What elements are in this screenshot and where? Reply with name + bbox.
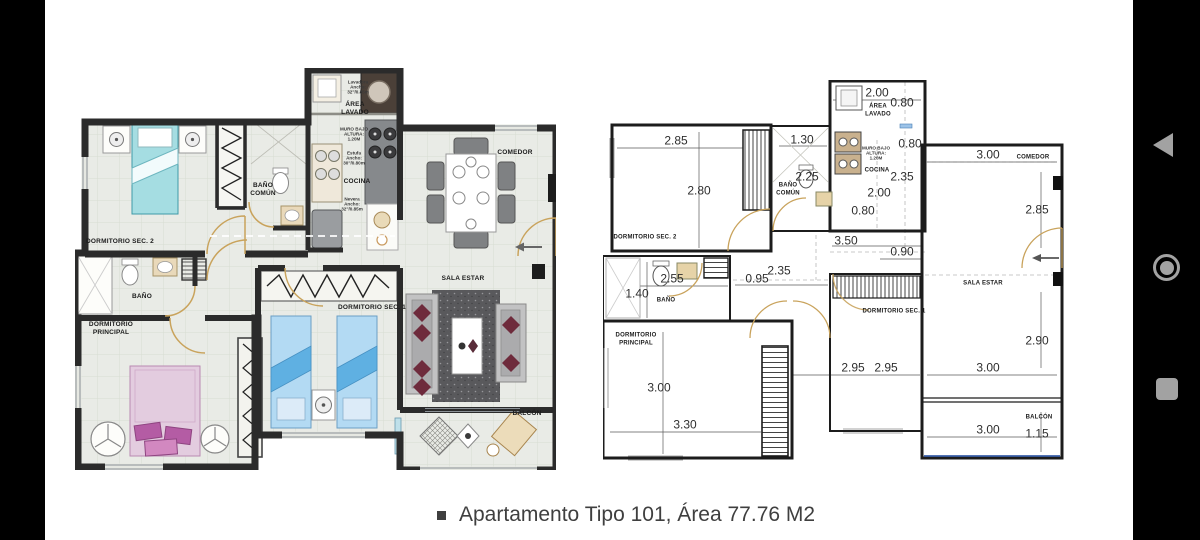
floorplan-furnished: Lavadora Ancho: 32"/0.85m ÁREA LAVADO MU… xyxy=(75,68,556,470)
dim-dormp-width: 3.30 xyxy=(673,418,696,433)
room-label-cocina: COCINA xyxy=(865,167,890,175)
dim-cocina-height: 2.35 xyxy=(890,170,913,185)
room-label-dormitorio-sec-2: DORMITORIO SEC. 2 xyxy=(86,238,154,246)
screen-bezel-left xyxy=(0,0,45,540)
android-nav-bar xyxy=(1133,0,1200,540)
caption-bullet xyxy=(437,511,446,520)
dim-dorm1-width-1: 2.95 xyxy=(841,361,864,376)
entry-arrow xyxy=(1032,254,1059,262)
dim-dorm2-width: 2.85 xyxy=(664,134,687,149)
room-label-banio: BAÑO xyxy=(657,297,675,305)
room-label-dormitorio-sec-1: DORMITORIO SEC. 1 xyxy=(338,304,406,312)
room-label-balcon: BALCÓN xyxy=(512,410,541,418)
note-lavadora: Lavadora Ancho: 32"/0.85m xyxy=(347,79,369,94)
room-label-cocina: COCINA xyxy=(344,178,371,186)
room-label-sala-estar: SALA ESTAR xyxy=(442,275,485,283)
home-icon[interactable] xyxy=(1153,254,1180,281)
dim-lavado-width: 2.00 xyxy=(865,86,888,101)
dim-cocina-total: 3.50 xyxy=(834,234,857,249)
dim-dormp-height: 3.00 xyxy=(647,381,670,396)
dim-pasillo-height: 0.95 xyxy=(745,272,768,287)
dim-lavado-depth: 0.80 xyxy=(890,96,913,111)
room-label-area-lavado: ÁREA LAVADO xyxy=(865,104,891,119)
dim-comedor-width: 3.00 xyxy=(976,148,999,163)
note-muro-bajo: MURO BAJO ALTURA: 1.20M xyxy=(862,145,890,160)
dim-cocina-width: 2.00 xyxy=(867,186,890,201)
room-label-banio: BAÑO xyxy=(132,293,152,301)
caption-text: Apartamento Tipo 101, Área 77.76 M2 xyxy=(459,503,815,527)
dim-sala-width: 3.00 xyxy=(976,361,999,376)
left-floorplan-drawing xyxy=(75,68,556,470)
room-label-balcon: BALCÓN xyxy=(1026,414,1053,422)
room-label-sala-estar: SALA ESTAR xyxy=(963,280,1003,288)
room-label-dormitorio-sec-1: DORMITORIO SEC. 1 xyxy=(863,308,926,316)
dim-pasillo-width: 0.90 xyxy=(890,245,913,260)
dim-cocina-depth: 0.80 xyxy=(851,204,874,219)
room-label-area-lavado: ÁREA LAVADO xyxy=(341,101,369,117)
dim-dorm1-width-2: 2.95 xyxy=(874,361,897,376)
room-label-banio-comun: BAÑO COMÚN xyxy=(776,183,800,198)
dim-balcon-width: 3.00 xyxy=(976,423,999,438)
dim-pasillo-length: 2.35 xyxy=(767,264,790,279)
room-label-dormitorio-principal: DORMITORIO PRINCIPAL xyxy=(616,333,657,348)
room-label-comedor: COMEDOR xyxy=(1017,154,1050,162)
floorplan-dimensioned: 2.00 0.80 ÁREA LAVADO 1.30 2.85 0.80 MUR… xyxy=(603,80,1090,470)
note-muro-bajo: MURO BAJO ALTURA: 1.20M xyxy=(340,126,368,141)
room-label-comedor: COMEDOR xyxy=(497,149,532,157)
room-label-banio-comun: BAÑO COMÚN xyxy=(250,182,276,198)
note-estufa: Estufa Ancho: 30"/0.80m xyxy=(343,150,365,165)
note-nevera: Nevera Ancho: 32"/0.85m xyxy=(341,196,363,211)
dim-comedor-height: 2.85 xyxy=(1025,203,1048,218)
dim-sala-height: 2.90 xyxy=(1025,334,1048,349)
dim-banio-height: 1.40 xyxy=(625,287,648,302)
room-label-dormitorio-principal: DORMITORIO PRINCIPAL xyxy=(89,321,133,337)
dim-balcon-height: 1.15 xyxy=(1025,427,1048,442)
back-icon[interactable] xyxy=(1153,133,1173,157)
phone-screenshot: Lavadora Ancho: 32"/0.85m ÁREA LAVADO MU… xyxy=(0,0,1200,540)
dim-dorm2-height: 2.80 xyxy=(687,184,710,199)
dim-muro-depth: 0.80 xyxy=(898,137,921,152)
caption: Apartamento Tipo 101, Área 77.76 M2 xyxy=(437,503,815,527)
recents-icon[interactable] xyxy=(1156,378,1178,400)
room-label-dormitorio-sec-2: DORMITORIO SEC. 2 xyxy=(614,234,677,242)
dim-hall-top: 1.30 xyxy=(790,133,813,148)
dim-banio-width: 2.55 xyxy=(660,272,683,287)
